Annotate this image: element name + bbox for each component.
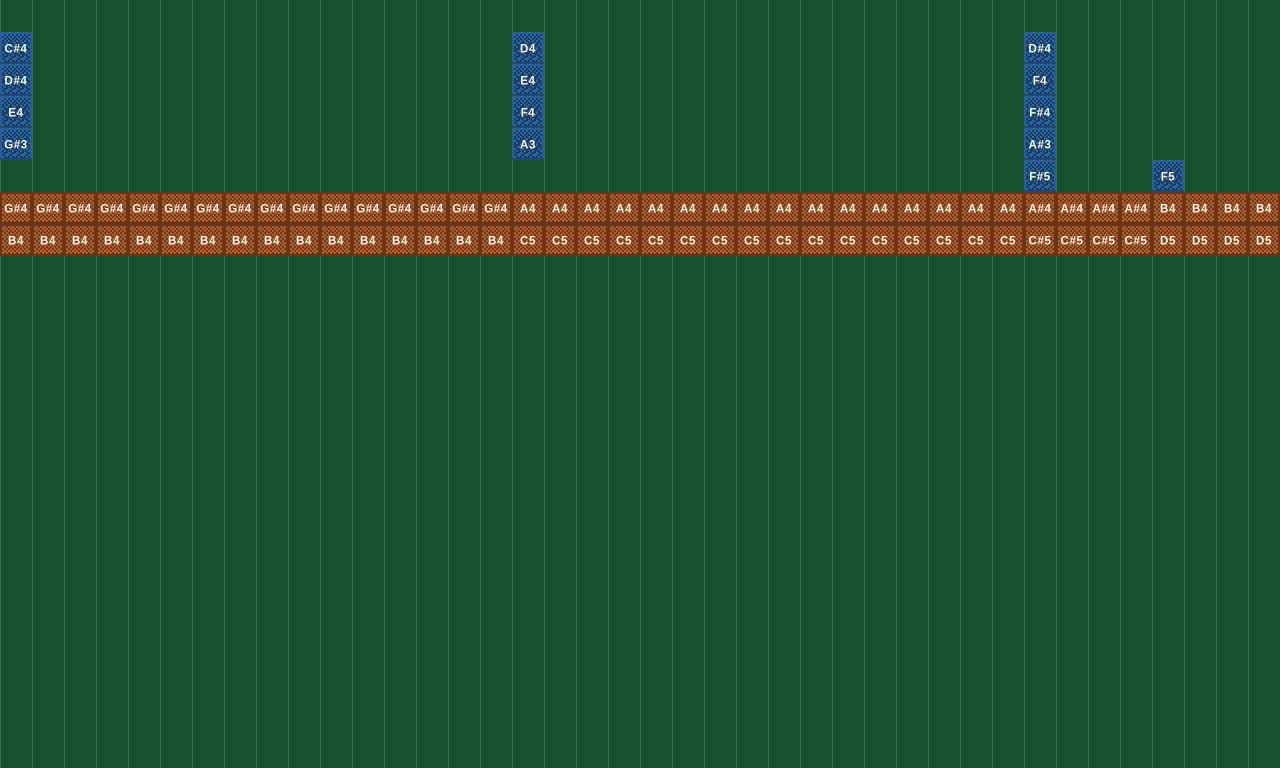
svg-text:B4: B4: [1192, 204, 1208, 216]
svg-text:C5: C5: [616, 236, 632, 248]
svg-text:A#4: A#4: [1061, 204, 1084, 216]
svg-text:C5: C5: [936, 236, 952, 248]
svg-text:C5: C5: [1000, 236, 1016, 248]
svg-text:D#4: D#4: [1029, 44, 1052, 56]
svg-text:B4: B4: [360, 236, 376, 248]
svg-text:B4: B4: [168, 236, 184, 248]
svg-text:B4: B4: [232, 236, 248, 248]
svg-text:G#4: G#4: [452, 204, 476, 216]
svg-text:F4: F4: [1033, 76, 1048, 88]
svg-text:B4: B4: [296, 236, 312, 248]
svg-text:B4: B4: [1160, 204, 1176, 216]
svg-text:C5: C5: [648, 236, 664, 248]
svg-text:G#4: G#4: [36, 204, 60, 216]
svg-text:A4: A4: [520, 204, 536, 216]
svg-text:B4: B4: [200, 236, 216, 248]
svg-text:G#4: G#4: [260, 204, 284, 216]
svg-text:B4: B4: [392, 236, 408, 248]
svg-text:B4: B4: [8, 236, 24, 248]
svg-text:B4: B4: [104, 236, 120, 248]
svg-text:D5: D5: [1160, 236, 1176, 248]
svg-text:A#4: A#4: [1029, 204, 1052, 216]
svg-text:C#5: C#5: [1029, 236, 1052, 248]
svg-text:E4: E4: [8, 108, 23, 120]
svg-text:C#5: C#5: [1125, 236, 1148, 248]
svg-text:G#4: G#4: [356, 204, 380, 216]
svg-text:C#4: C#4: [5, 44, 28, 56]
svg-text:A#4: A#4: [1125, 204, 1148, 216]
svg-text:B4: B4: [1224, 204, 1240, 216]
svg-text:G#4: G#4: [420, 204, 444, 216]
svg-text:C5: C5: [552, 236, 568, 248]
svg-text:G#4: G#4: [292, 204, 316, 216]
svg-text:B4: B4: [488, 236, 504, 248]
svg-text:G#4: G#4: [228, 204, 252, 216]
svg-text:F4: F4: [521, 108, 536, 120]
svg-text:C5: C5: [808, 236, 824, 248]
svg-text:G#4: G#4: [164, 204, 188, 216]
svg-text:C#5: C#5: [1061, 236, 1084, 248]
svg-text:D#4: D#4: [5, 76, 28, 88]
svg-text:A4: A4: [680, 204, 696, 216]
svg-text:A4: A4: [936, 204, 952, 216]
svg-text:A4: A4: [648, 204, 664, 216]
svg-text:B4: B4: [136, 236, 152, 248]
svg-text:C5: C5: [968, 236, 984, 248]
svg-text:F#4: F#4: [1029, 108, 1051, 120]
svg-text:G#4: G#4: [196, 204, 220, 216]
svg-text:A4: A4: [808, 204, 824, 216]
svg-text:G#3: G#3: [4, 140, 28, 152]
svg-text:C#5: C#5: [1093, 236, 1116, 248]
svg-text:F#5: F#5: [1029, 172, 1051, 184]
svg-text:C5: C5: [584, 236, 600, 248]
svg-text:C5: C5: [712, 236, 728, 248]
svg-text:C5: C5: [744, 236, 760, 248]
svg-text:A4: A4: [1000, 204, 1016, 216]
svg-text:F5: F5: [1161, 172, 1176, 184]
svg-text:B4: B4: [424, 236, 440, 248]
svg-text:D5: D5: [1224, 236, 1240, 248]
svg-text:D5: D5: [1192, 236, 1208, 248]
svg-text:A4: A4: [712, 204, 728, 216]
svg-text:A4: A4: [744, 204, 760, 216]
svg-text:G#4: G#4: [388, 204, 412, 216]
svg-text:G#4: G#4: [68, 204, 92, 216]
svg-text:B4: B4: [72, 236, 88, 248]
svg-text:G#4: G#4: [100, 204, 124, 216]
svg-text:A4: A4: [904, 204, 920, 216]
svg-text:D4: D4: [520, 44, 536, 56]
svg-text:B4: B4: [456, 236, 472, 248]
svg-text:A4: A4: [552, 204, 568, 216]
svg-text:G#4: G#4: [324, 204, 348, 216]
svg-text:A4: A4: [872, 204, 888, 216]
svg-text:G#4: G#4: [4, 204, 28, 216]
svg-text:A4: A4: [776, 204, 792, 216]
svg-text:B4: B4: [40, 236, 56, 248]
svg-text:C5: C5: [872, 236, 888, 248]
svg-text:C5: C5: [904, 236, 920, 248]
svg-text:D5: D5: [1256, 236, 1272, 248]
svg-text:A#3: A#3: [1029, 140, 1052, 152]
svg-text:C5: C5: [840, 236, 856, 248]
svg-text:A4: A4: [968, 204, 984, 216]
svg-text:E4: E4: [520, 76, 535, 88]
svg-text:A#4: A#4: [1093, 204, 1116, 216]
svg-text:B4: B4: [328, 236, 344, 248]
svg-text:B4: B4: [264, 236, 280, 248]
svg-text:C5: C5: [776, 236, 792, 248]
svg-text:A3: A3: [520, 140, 536, 152]
svg-text:G#4: G#4: [132, 204, 156, 216]
svg-text:A4: A4: [840, 204, 856, 216]
svg-text:A4: A4: [616, 204, 632, 216]
svg-text:B4: B4: [1256, 204, 1272, 216]
svg-text:C5: C5: [680, 236, 696, 248]
svg-text:G#4: G#4: [484, 204, 508, 216]
svg-text:C5: C5: [520, 236, 536, 248]
svg-text:A4: A4: [584, 204, 600, 216]
